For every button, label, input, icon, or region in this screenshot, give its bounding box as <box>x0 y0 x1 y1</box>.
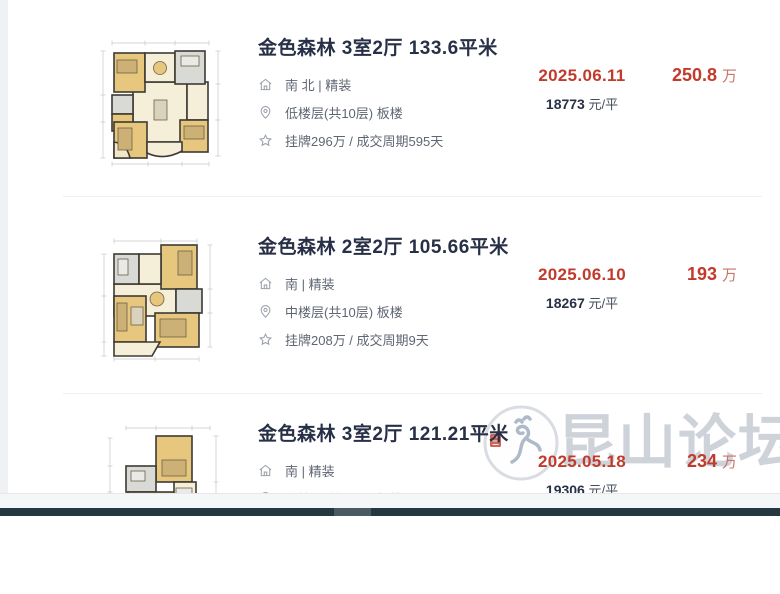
total-price: 234 <box>687 451 717 471</box>
orientation-text: 南 北 | 精装 <box>285 75 351 94</box>
floor-plan-thumbnail[interactable] <box>98 237 223 367</box>
location-pin-icon <box>258 105 273 120</box>
total-price-block: 250.8万 <box>617 65 737 86</box>
floor-plan-thumbnail[interactable] <box>98 38 223 168</box>
total-price-unit: 万 <box>722 267 737 284</box>
scrollbar-thumb[interactable] <box>334 508 371 516</box>
listing-info-row: 挂牌208万 / 成交周期9天 <box>258 325 533 353</box>
house-icon <box>258 276 273 291</box>
house-icon <box>258 77 273 92</box>
floor-plan-image <box>98 38 223 168</box>
star-icon <box>258 332 273 347</box>
unit-price: 18267 <box>546 295 585 311</box>
listing-card[interactable]: 金色森林 3室2厅 133.6平米 南 北 | 精装 低楼层(共10层) 板楼 … <box>0 38 780 208</box>
floor-text: 中楼层(共10层) 板楼 <box>285 302 403 321</box>
orientation-row: 南 | 精装 <box>258 269 533 297</box>
total-price-unit: 万 <box>722 454 737 471</box>
unit-price-suffix: 元/平 <box>588 296 618 311</box>
floor-plan-thumbnail[interactable] <box>98 424 223 554</box>
total-price-unit: 万 <box>722 68 737 85</box>
total-price-block: 193万 <box>617 264 737 285</box>
orientation-row: 南 北 | 精装 <box>258 70 533 98</box>
total-price: 193 <box>687 264 717 284</box>
floor-plan-image <box>98 237 223 362</box>
orientation-text: 南 | 精装 <box>285 461 335 480</box>
listing-card[interactable]: 金色森林 2室2厅 105.66平米 南 | 精装 中楼层(共10层) 板楼 挂… <box>0 237 780 407</box>
listing-title[interactable]: 金色森林 2室2厅 105.66平米 <box>258 237 533 259</box>
floor-row: 中楼层(共10层) 板楼 <box>258 297 533 325</box>
floor-text: 低楼层(共10层) 板楼 <box>285 103 403 122</box>
star-icon <box>258 133 273 148</box>
footer-strip <box>0 493 780 509</box>
orientation-row: 南 | 精装 <box>258 456 533 484</box>
listing-title[interactable]: 金色森林 3室2厅 121.21平米 <box>258 424 533 446</box>
unit-price: 18773 <box>546 96 585 112</box>
location-pin-icon <box>258 304 273 319</box>
listing-info-text: 挂牌208万 / 成交周期9天 <box>285 330 429 349</box>
orientation-text: 南 | 精装 <box>285 274 335 293</box>
total-price: 250.8 <box>672 65 717 85</box>
house-icon <box>258 463 273 478</box>
listing-info-text: 挂牌296万 / 成交周期595天 <box>285 131 443 150</box>
total-price-block: 234万 <box>617 451 737 472</box>
listing-info-row: 挂牌296万 / 成交周期595天 <box>258 126 533 154</box>
floor-row: 低楼层(共10层) 板楼 <box>258 98 533 126</box>
unit-price-suffix: 元/平 <box>588 97 618 112</box>
horizontal-scrollbar[interactable] <box>0 508 780 516</box>
listing-title[interactable]: 金色森林 3室2厅 133.6平米 <box>258 38 533 60</box>
